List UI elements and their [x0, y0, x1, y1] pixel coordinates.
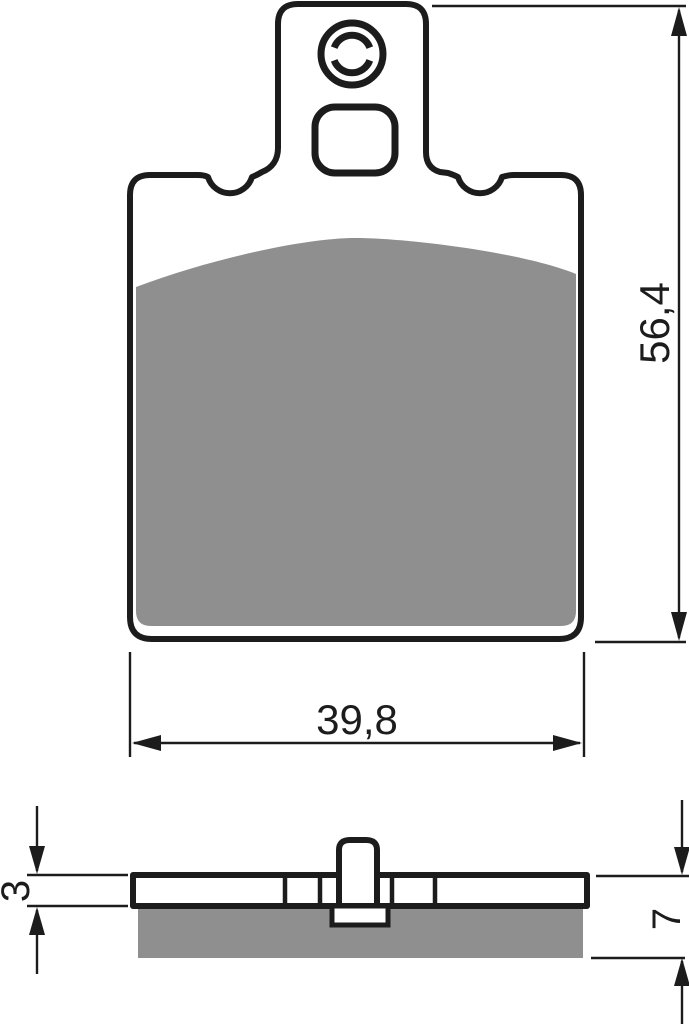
- brake-pad-technical-drawing: 56,4 39,8: [0, 0, 689, 1024]
- arrowhead-up: [29, 907, 45, 935]
- dimension-pad-width: 39,8: [130, 652, 584, 757]
- front-view: [130, 4, 581, 639]
- lug-recess: [332, 906, 388, 925]
- square-cutout: [315, 107, 395, 173]
- plate-thickness-label: 3: [0, 880, 38, 902]
- arrowhead-down: [29, 846, 45, 874]
- arrowhead-up: [674, 958, 689, 986]
- dimension-backplate-thickness: 3: [0, 806, 128, 974]
- friction-material-front: [136, 238, 576, 626]
- arrowhead-up: [671, 7, 687, 36]
- section-view: [133, 840, 587, 958]
- width-label: 39,8: [316, 696, 398, 743]
- height-label: 56,4: [631, 282, 678, 364]
- total-thickness-label: 7: [645, 908, 689, 930]
- drawing-svg: 56,4 39,8: [0, 0, 689, 1024]
- arrowhead-right: [553, 735, 582, 751]
- dimension-total-thickness: 7: [591, 800, 689, 1024]
- center-lug: [339, 840, 377, 903]
- arrowhead-down: [674, 847, 689, 875]
- arrowhead-down: [671, 612, 687, 641]
- arrowhead-left: [132, 735, 161, 751]
